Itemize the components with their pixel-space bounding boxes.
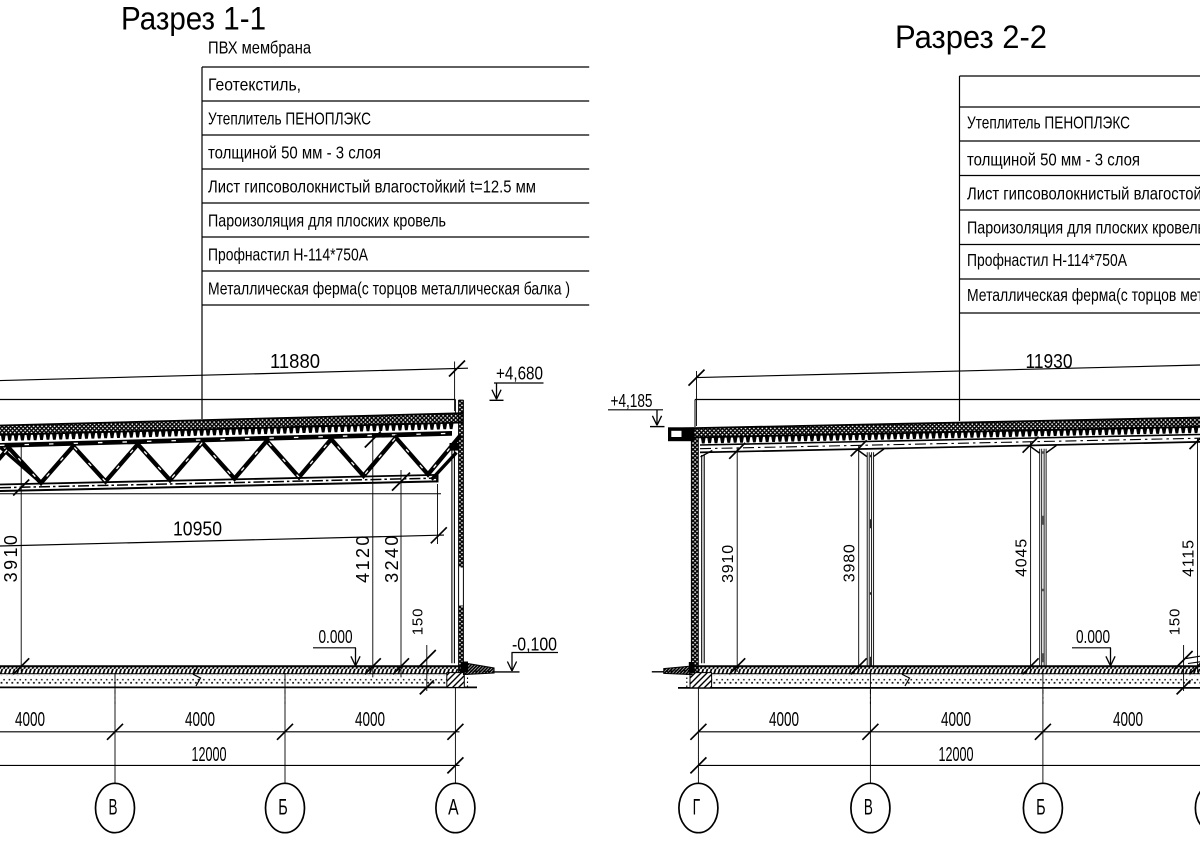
svg-text:3910: 3910 xyxy=(720,544,737,583)
svg-text:Геотекстиль,: Геотекстиль, xyxy=(208,75,301,95)
svg-text:толщиной 50 мм - 3 слоя: толщиной 50 мм - 3 слоя xyxy=(208,143,381,163)
svg-text:ПВХ мембрана: ПВХ мембрана xyxy=(208,38,311,58)
svg-text:+4,185: +4,185 xyxy=(611,391,653,411)
svg-text:4045: 4045 xyxy=(1013,538,1030,577)
svg-text:4120: 4120 xyxy=(353,533,373,583)
svg-text:4000: 4000 xyxy=(185,709,215,731)
svg-text:3910: 3910 xyxy=(1,533,21,583)
svg-text:150: 150 xyxy=(1166,608,1183,635)
svg-text:11930: 11930 xyxy=(1026,350,1073,373)
svg-text:Лист гипсоволокнистый влагосто: Лист гипсоволокнистый влагостойкий t=12.… xyxy=(208,177,536,197)
svg-text:Разрез 1-1: Разрез 1-1 xyxy=(121,1,266,37)
svg-text:3980: 3980 xyxy=(842,543,859,582)
svg-text:Профнастил Н-114*750А: Профнастил Н-114*750А xyxy=(967,250,1127,270)
svg-text:Металлическая ферма(с торцов м: Металлическая ферма(с торцов металлическ… xyxy=(967,285,1200,305)
svg-text:150: 150 xyxy=(410,608,427,635)
svg-text:0.000: 0.000 xyxy=(1076,627,1110,647)
svg-text:-0,100: -0,100 xyxy=(512,635,557,655)
svg-text:Утеплитель ПЕНОПЛЭКС: Утеплитель ПЕНОПЛЭКС xyxy=(208,109,371,129)
svg-text:Г: Г xyxy=(693,795,701,820)
svg-text:11880: 11880 xyxy=(270,350,320,373)
svg-text:Профнастил Н-114*750А: Профнастил Н-114*750А xyxy=(208,245,368,265)
svg-text:4000: 4000 xyxy=(941,709,971,731)
svg-text:Пароизоляция для плоских крове: Пароизоляция для плоских кровель xyxy=(967,218,1200,238)
svg-text:А: А xyxy=(448,795,459,820)
svg-text:4000: 4000 xyxy=(1113,709,1143,731)
svg-text:В: В xyxy=(109,795,118,820)
svg-text:Пароизоляция для плоских крове: Пароизоляция для плоских кровель xyxy=(208,211,446,231)
svg-text:4000: 4000 xyxy=(769,709,799,731)
svg-text:4115: 4115 xyxy=(1180,539,1197,577)
svg-text:Металлическая ферма(с торцов м: Металлическая ферма(с торцов металлическ… xyxy=(208,279,570,299)
svg-text:10950: 10950 xyxy=(173,518,222,541)
svg-text:Разрез 2-2: Разрез 2-2 xyxy=(895,19,1047,55)
svg-text:Лист гипсоволокнистый влагосто: Лист гипсоволокнистый влагостойкий t=12.… xyxy=(967,184,1200,204)
svg-text:Б: Б xyxy=(1036,795,1046,820)
svg-text:4000: 4000 xyxy=(15,709,45,731)
svg-text:3240: 3240 xyxy=(382,533,402,583)
svg-text:Утеплитель ПЕНОПЛЭКС: Утеплитель ПЕНОПЛЭКС xyxy=(967,113,1130,133)
svg-text:В: В xyxy=(864,795,873,820)
svg-text:12000: 12000 xyxy=(192,744,227,766)
svg-text:+4,680: +4,680 xyxy=(496,364,543,384)
svg-text:4000: 4000 xyxy=(355,709,385,731)
svg-text:12000: 12000 xyxy=(939,744,974,766)
svg-text:0.000: 0.000 xyxy=(319,627,353,647)
svg-text:толщиной 50 мм - 3 слоя: толщиной 50 мм - 3 слоя xyxy=(967,150,1140,170)
svg-text:Б: Б xyxy=(278,795,288,820)
